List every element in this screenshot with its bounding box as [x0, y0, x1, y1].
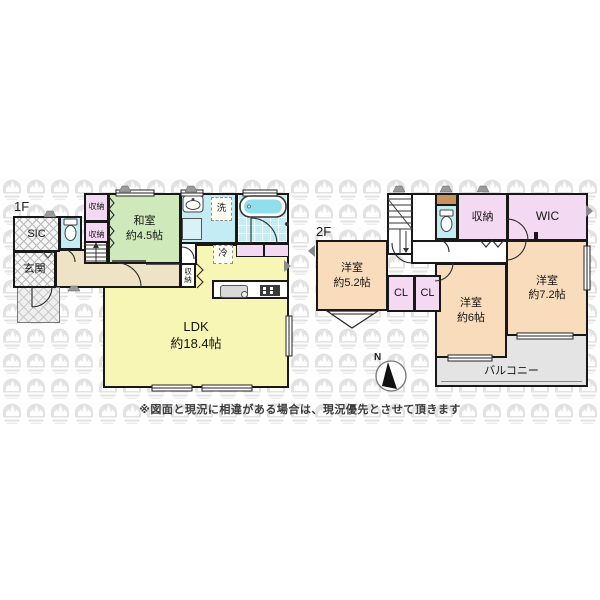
closet-cl-left-label: CL — [394, 286, 408, 300]
closet-1f-small-label: 収 納 — [184, 268, 192, 284]
counter-divider — [263, 245, 265, 256]
closet-1f-top-label: 収納 — [89, 203, 105, 212]
stove-icon — [260, 285, 280, 296]
closet-2f: 収納 — [457, 193, 508, 241]
kitchen-unit — [212, 280, 289, 299]
balcony-rail-line — [441, 381, 582, 382]
hall-2f-lower — [411, 240, 508, 264]
room-sic-label: SIC — [27, 227, 45, 241]
washroom-cabinet — [182, 218, 202, 240]
compass-north-label: N — [374, 352, 381, 363]
room-52-label: 洋室約5.2帖 — [333, 261, 370, 290]
hall-2f-upper — [411, 193, 437, 242]
laundry-space: 洗 — [211, 197, 232, 221]
closet-1f-mid-label: 収納 — [89, 231, 105, 240]
closet-1f-top: 収納 — [84, 193, 109, 222]
fridge-space: 冷 — [213, 245, 233, 264]
room-6: 洋室約6帖 — [435, 263, 507, 358]
floor1-label: 1F — [14, 199, 29, 214]
floor2-label: 2F — [316, 224, 331, 239]
toilet-2f — [435, 193, 458, 240]
kitchen-faucet-icon — [241, 291, 248, 298]
room-72-label: 洋室約7.2帖 — [528, 274, 565, 303]
room-6-label: 洋室約6帖 — [457, 296, 485, 325]
closet-cl-right-label: CL — [420, 286, 434, 300]
room-wic: WIC — [507, 193, 588, 241]
washroom-entry — [180, 244, 197, 265]
room-genkan-label: 玄関 — [24, 262, 46, 276]
room-washitsu: 和室約4.5帖 — [108, 193, 181, 264]
toilet-2f-shelf — [437, 195, 456, 206]
floorplan-layer: 1F LDK約18.4帖 玄関 SIC 収納 収納 和室約4.5帖 — [0, 0, 600, 600]
room-ldk-label: LDK約18.4帖 — [170, 319, 221, 353]
stairs-2f — [387, 193, 413, 255]
balcony-label: バルコニー — [484, 364, 539, 378]
closet-cl-left: CL — [387, 275, 415, 312]
bathroom — [236, 193, 289, 244]
toilet-1f — [59, 216, 82, 250]
room-genkan: 玄関 — [13, 251, 56, 288]
room-sic: SIC — [13, 216, 60, 252]
room-washitsu-label: 和室約4.5帖 — [126, 214, 163, 243]
stairs-1f — [84, 241, 108, 264]
disclaimer-text: ※図面と現況に相違がある場合は、現況優先とさせて頂きます — [0, 401, 600, 417]
floorplan-image: 1F LDK約18.4帖 玄関 SIC 収納 収納 和室約4.5帖 — [0, 0, 600, 600]
kitchen-counter-shelf — [236, 244, 289, 257]
closet-cl-right: CL — [414, 275, 441, 312]
room-52: 洋室約5.2帖 — [316, 240, 388, 311]
closet-1f-small: 収 納 — [180, 263, 196, 288]
laundry-label: 洗 — [217, 203, 227, 215]
fridge-label: 冷 — [218, 248, 228, 260]
room-72: 洋室約7.2帖 — [506, 240, 588, 336]
closet-2f-label: 収納 — [472, 210, 494, 224]
entrance-porch — [17, 287, 60, 323]
room-wic-label: WIC — [536, 209, 559, 225]
